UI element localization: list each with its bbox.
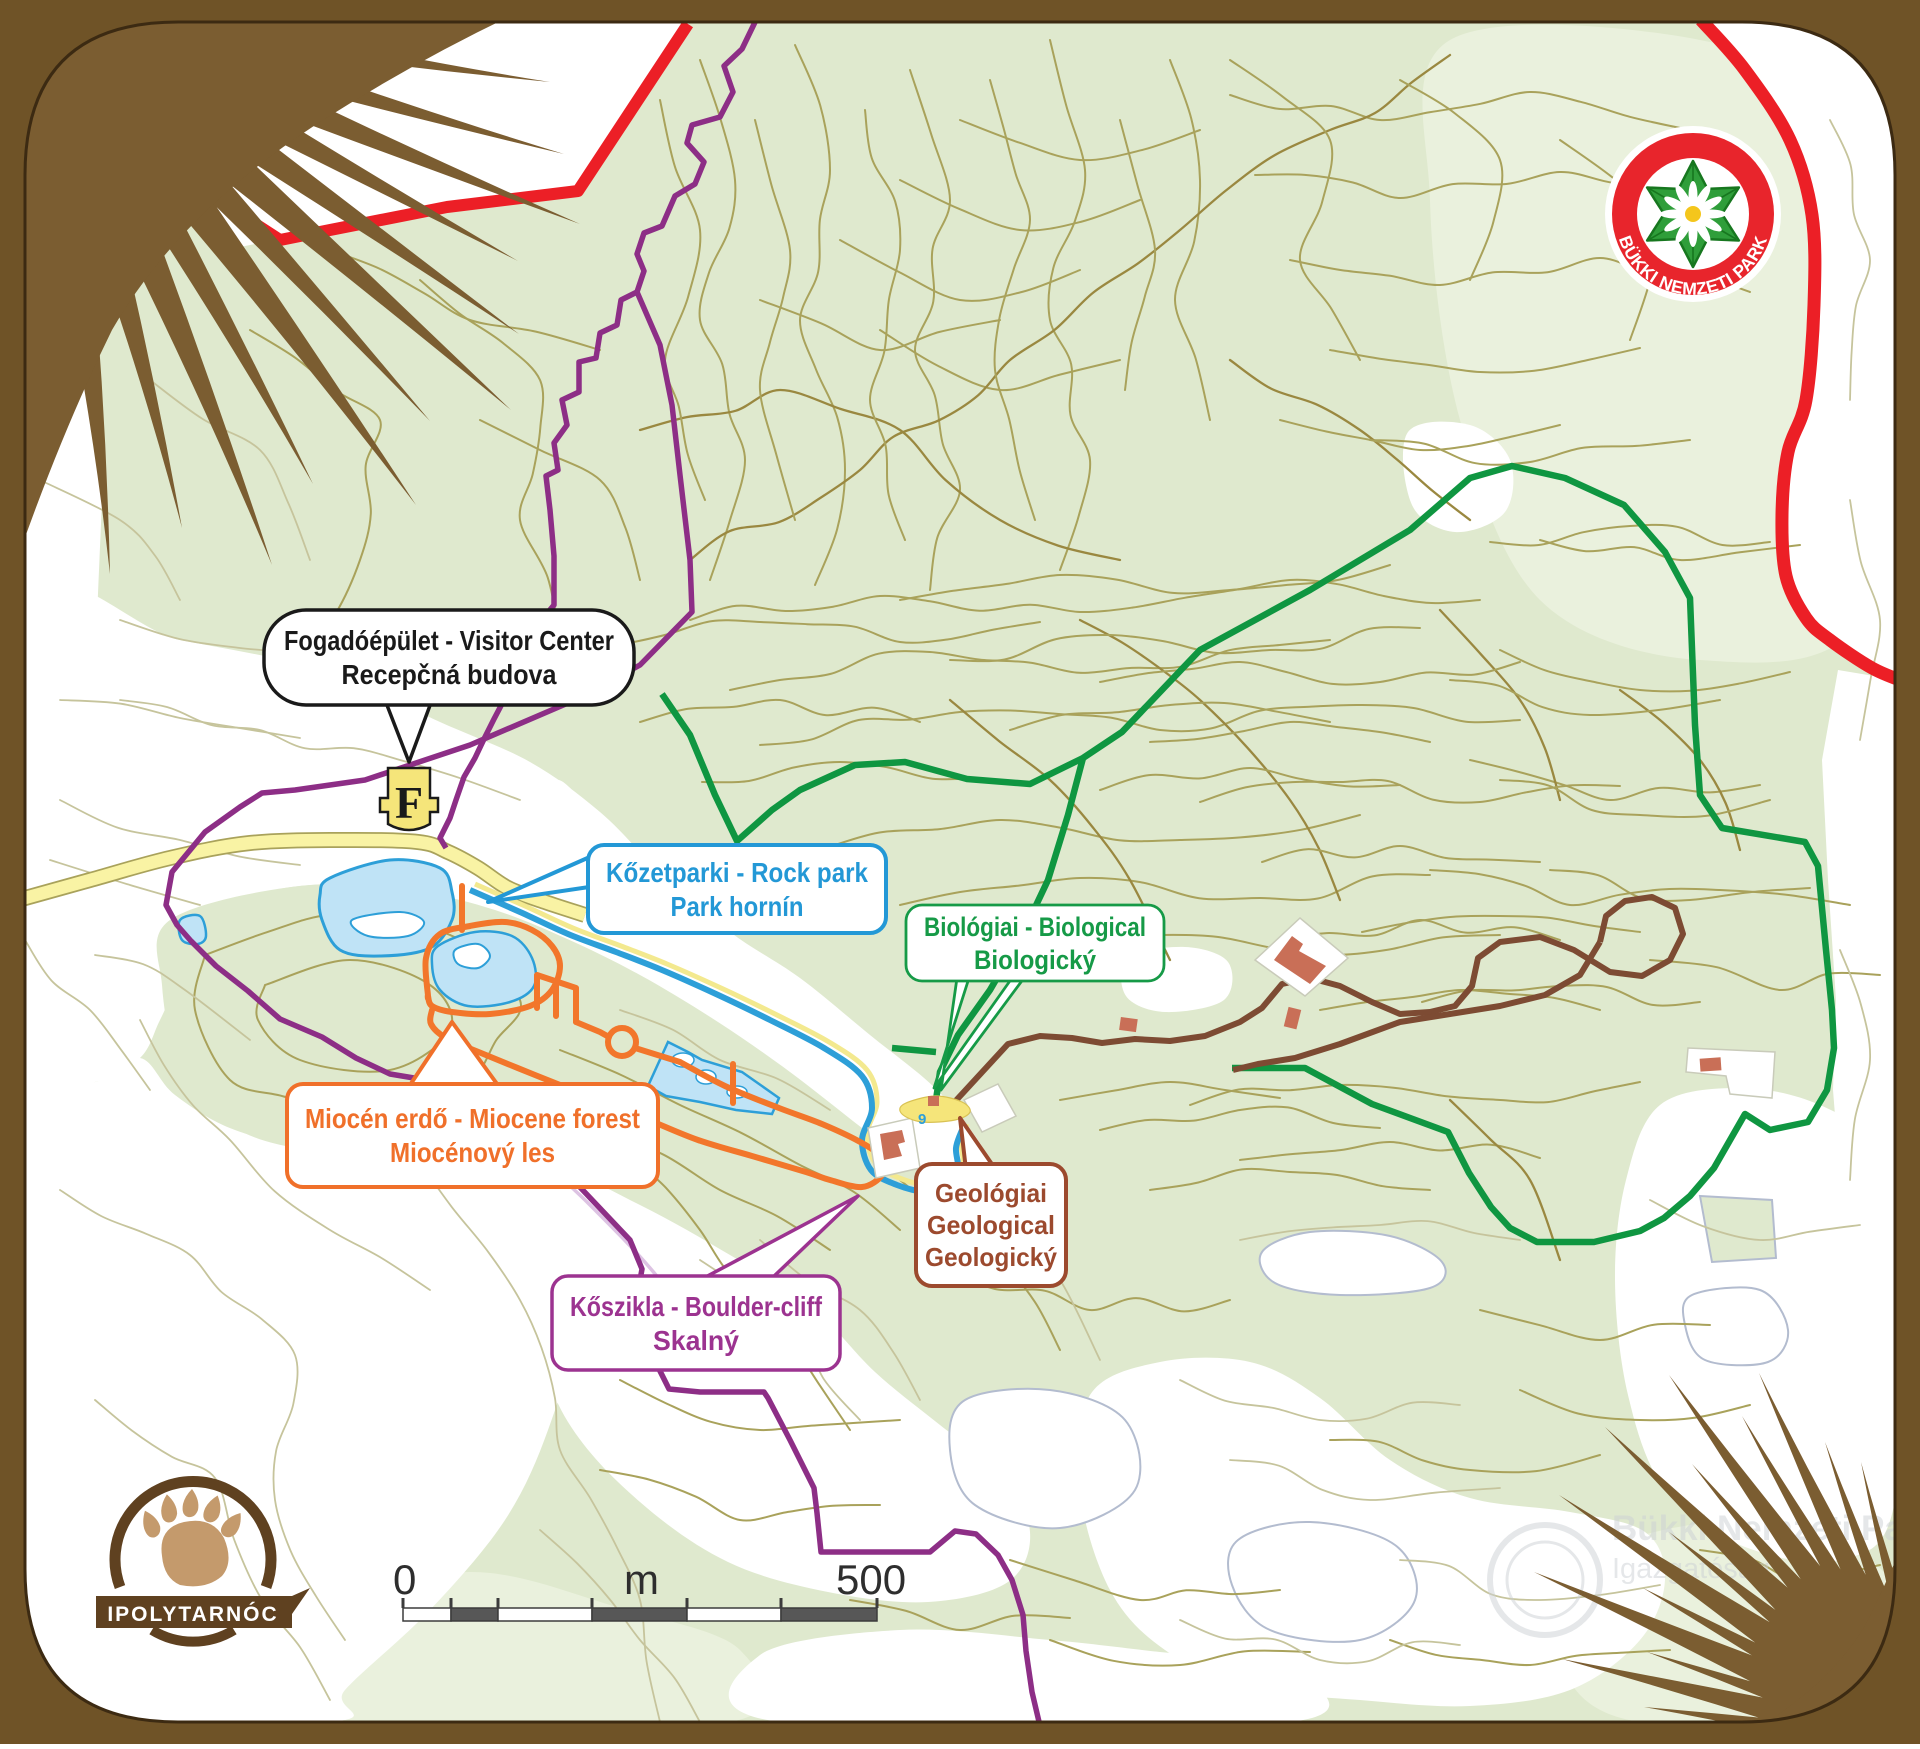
svg-text:Miocénový les: Miocénový les xyxy=(390,1137,555,1168)
svg-text:Kőszikla - Boulder-cliff: Kőszikla - Boulder-cliff xyxy=(570,1291,823,1322)
svg-text:Biologický: Biologický xyxy=(974,945,1096,975)
svg-text:Geologický: Geologický xyxy=(925,1242,1058,1272)
svg-text:F: F xyxy=(395,777,423,828)
svg-text:9: 9 xyxy=(918,1111,926,1128)
svg-text:IPOLYTARNÓC: IPOLYTARNÓC xyxy=(107,1602,278,1626)
svg-text:Biológiai - Biological: Biológiai - Biological xyxy=(924,912,1146,942)
svg-text:Geological: Geological xyxy=(927,1210,1055,1240)
svg-text:Geológiai: Geológiai xyxy=(935,1178,1047,1208)
svg-text:500: 500 xyxy=(836,1556,906,1603)
svg-text:Kőzetparki - Rock park: Kőzetparki - Rock park xyxy=(606,857,868,888)
svg-text:0: 0 xyxy=(393,1556,416,1603)
svg-text:Park hornín: Park hornín xyxy=(671,891,804,922)
svg-text:Miocén erdő - Miocene forest: Miocén erdő - Miocene forest xyxy=(305,1103,640,1134)
svg-text:m: m xyxy=(624,1556,659,1603)
svg-text:Fogadóépület - Visitor Center: Fogadóépület - Visitor Center xyxy=(284,625,614,656)
svg-text:Recepčná budova: Recepčná budova xyxy=(342,659,557,690)
svg-text:Skalný: Skalný xyxy=(653,1325,739,1356)
